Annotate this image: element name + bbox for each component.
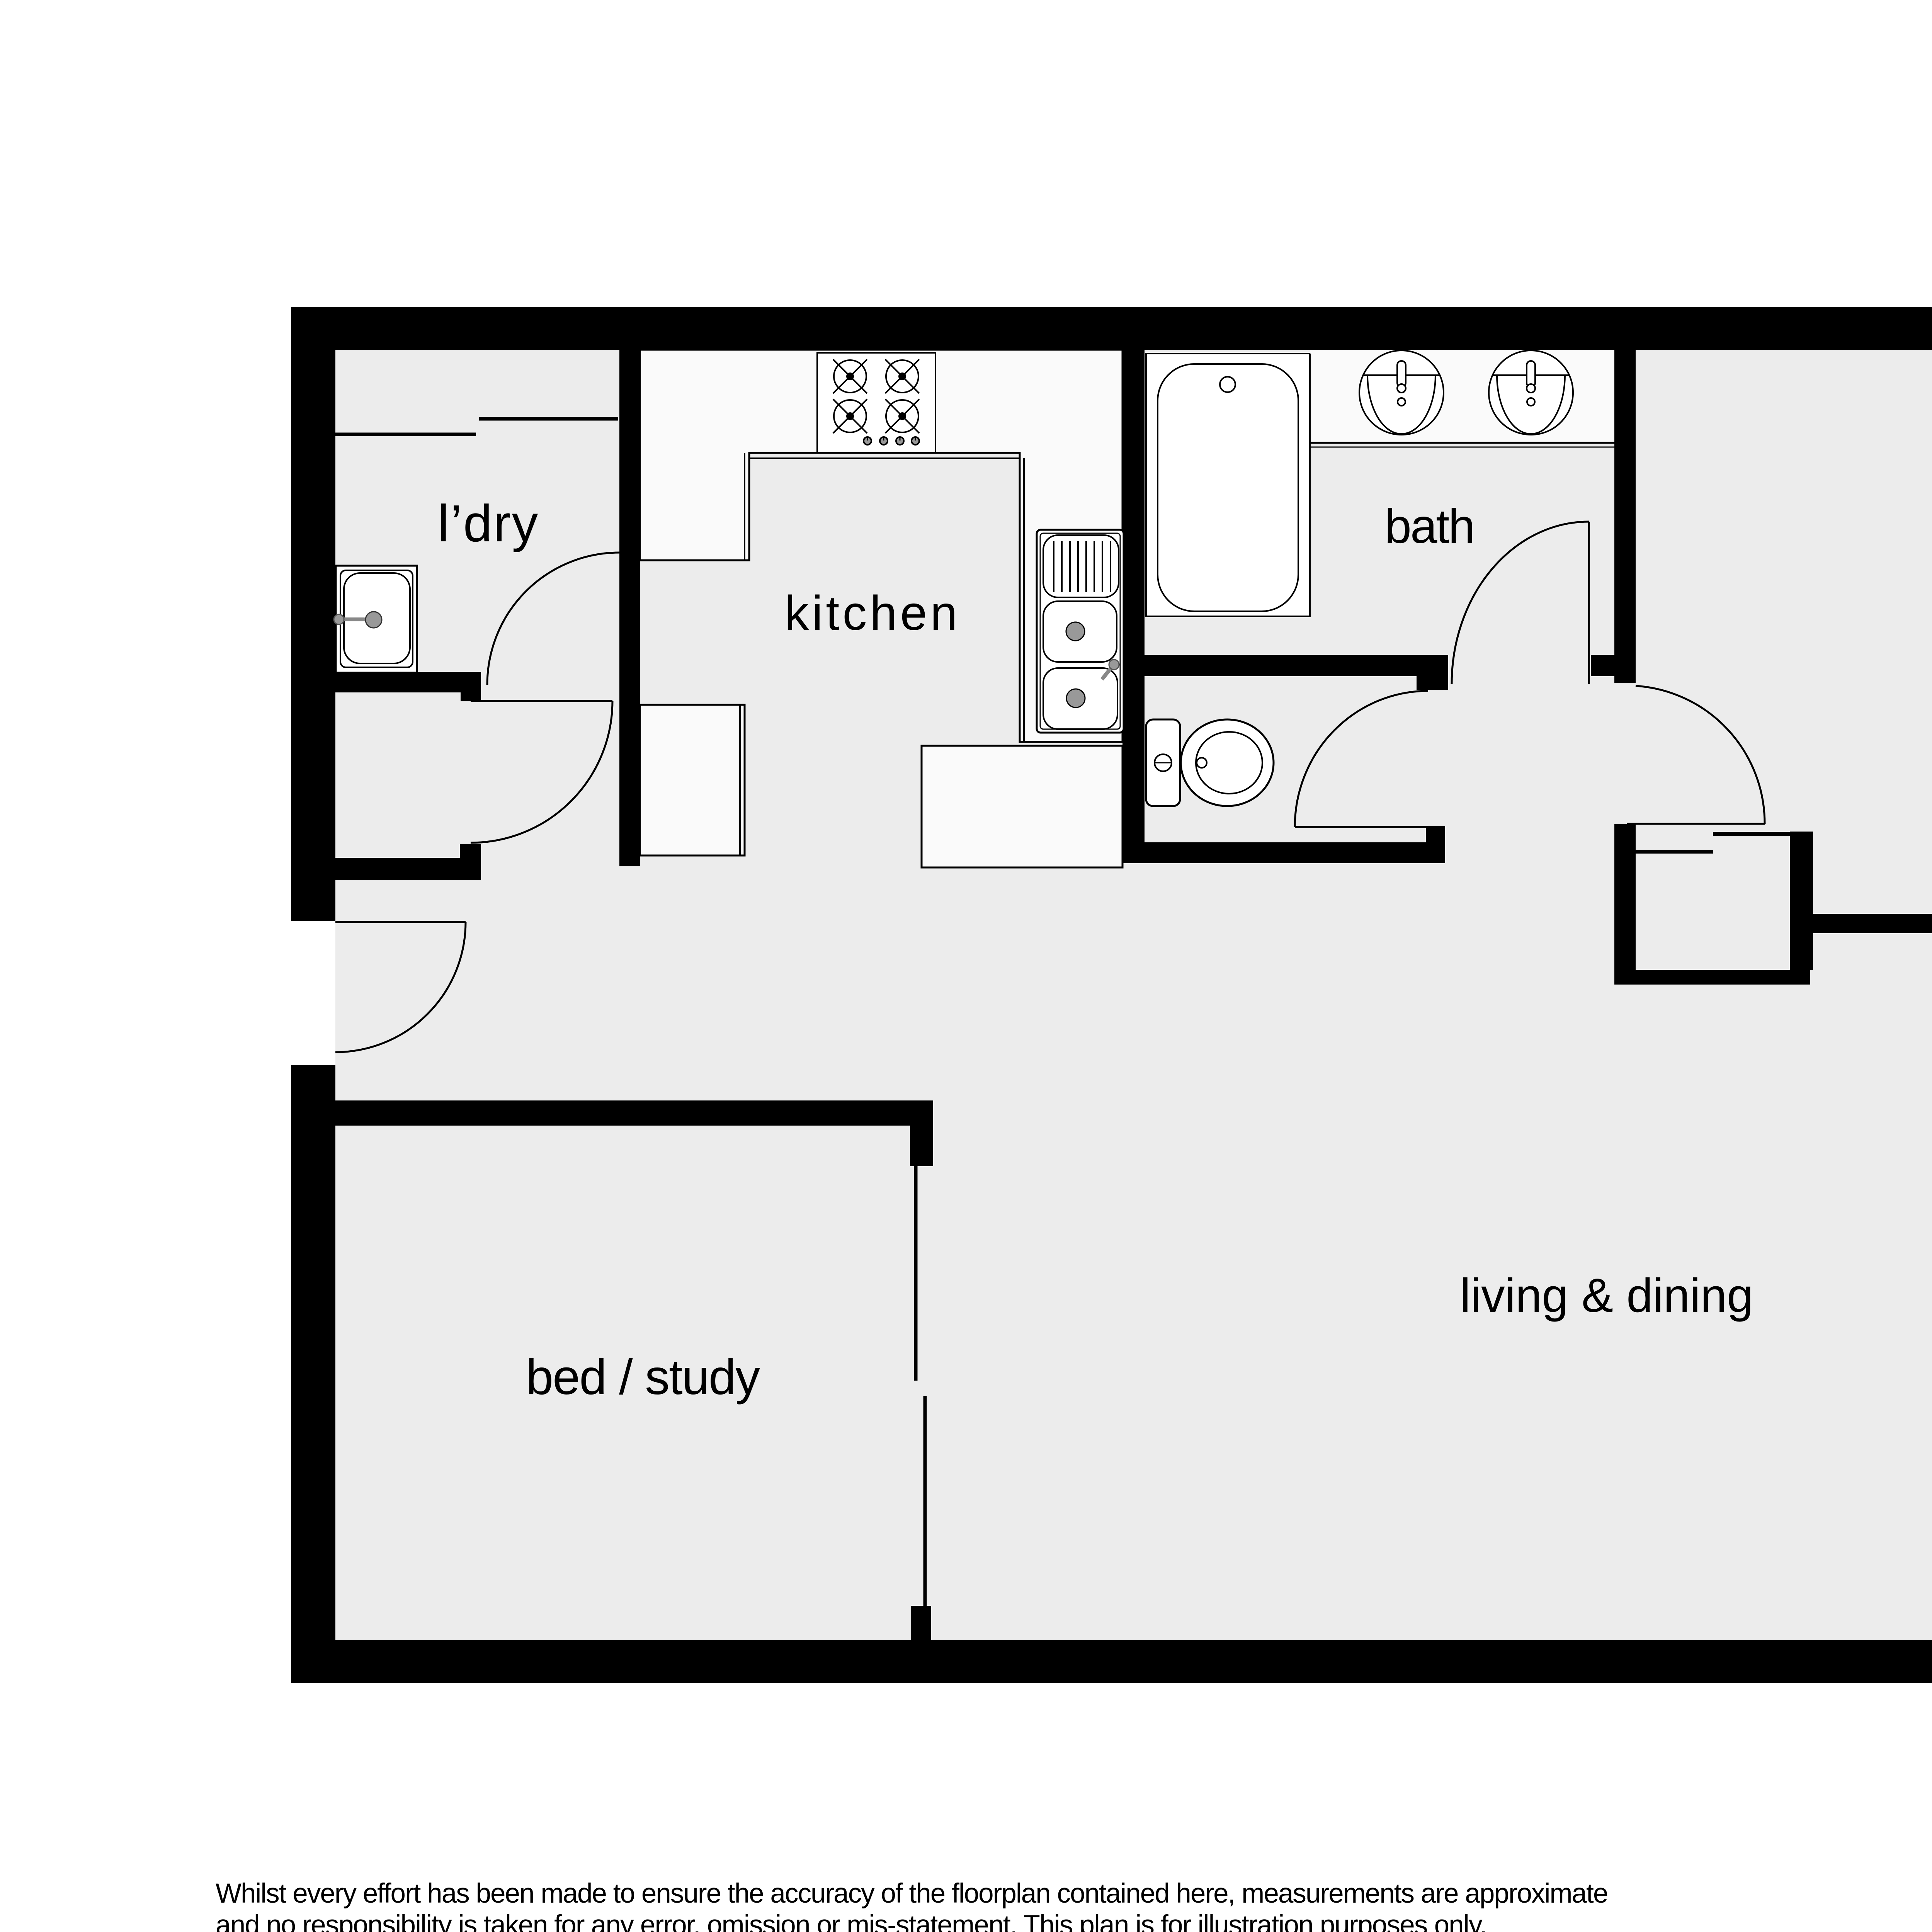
svg-text:and no responsibility is taken: and no responsibility is taken for any e… [216,1910,1486,1932]
svg-text:kitchen: kitchen [784,586,960,640]
svg-text:l’dry: l’dry [438,494,539,553]
svg-text:living & dining: living & dining [1460,1269,1753,1322]
svg-text:Whilst every effort has been m: Whilst every effort has been made to ens… [216,1878,1607,1909]
svg-text:bed / study: bed / study [526,1350,760,1405]
svg-text:bath: bath [1384,500,1474,553]
